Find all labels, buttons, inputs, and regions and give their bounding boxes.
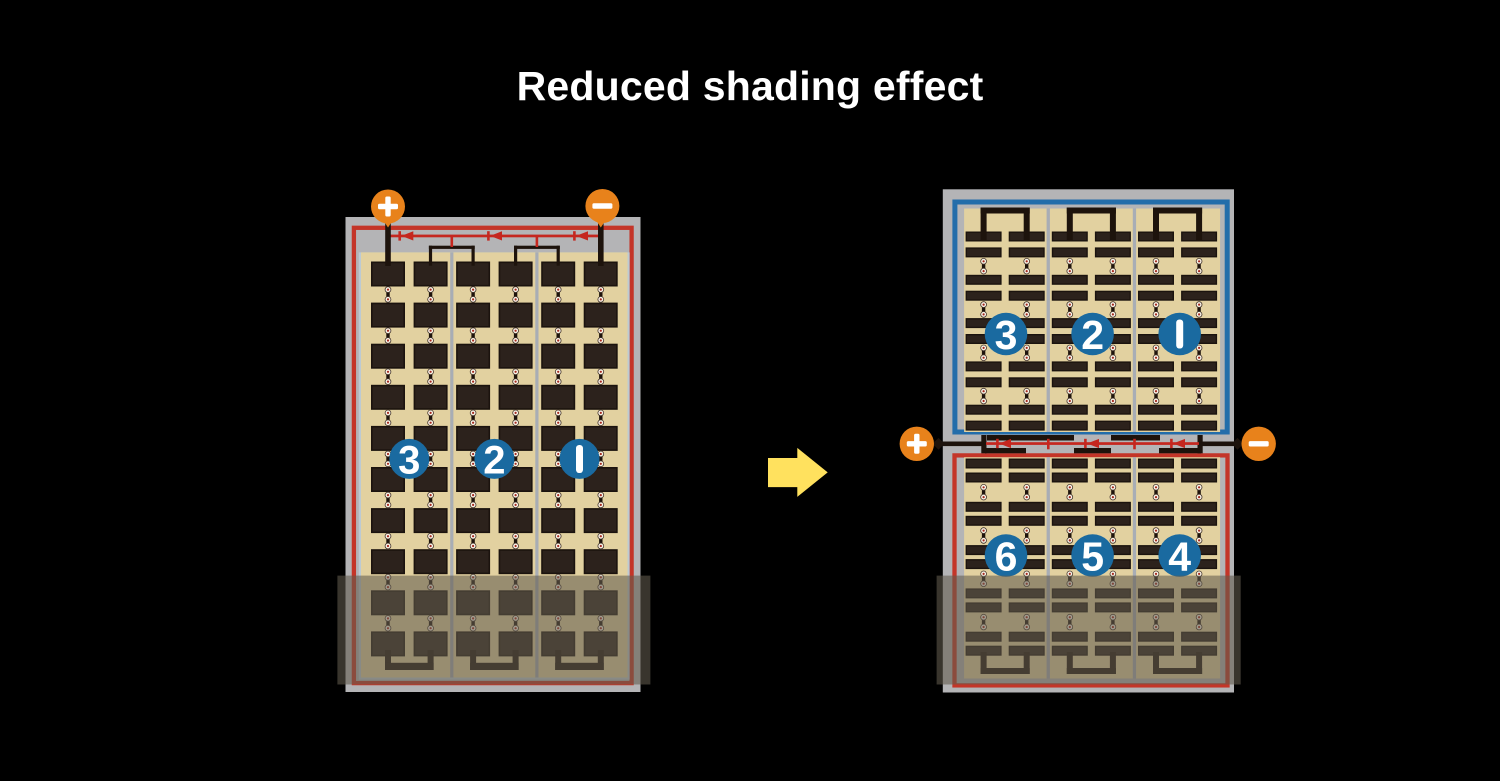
svg-text:3: 3 (995, 312, 1018, 358)
svg-text:2: 2 (1081, 312, 1104, 358)
svg-text:2: 2 (483, 438, 505, 482)
svg-text:Reduced shading effect: Reduced shading effect (517, 63, 984, 109)
svg-text:5: 5 (1081, 533, 1104, 579)
svg-text:4: 4 (1168, 533, 1191, 579)
svg-text:3: 3 (398, 438, 420, 482)
svg-text:6: 6 (995, 533, 1018, 579)
